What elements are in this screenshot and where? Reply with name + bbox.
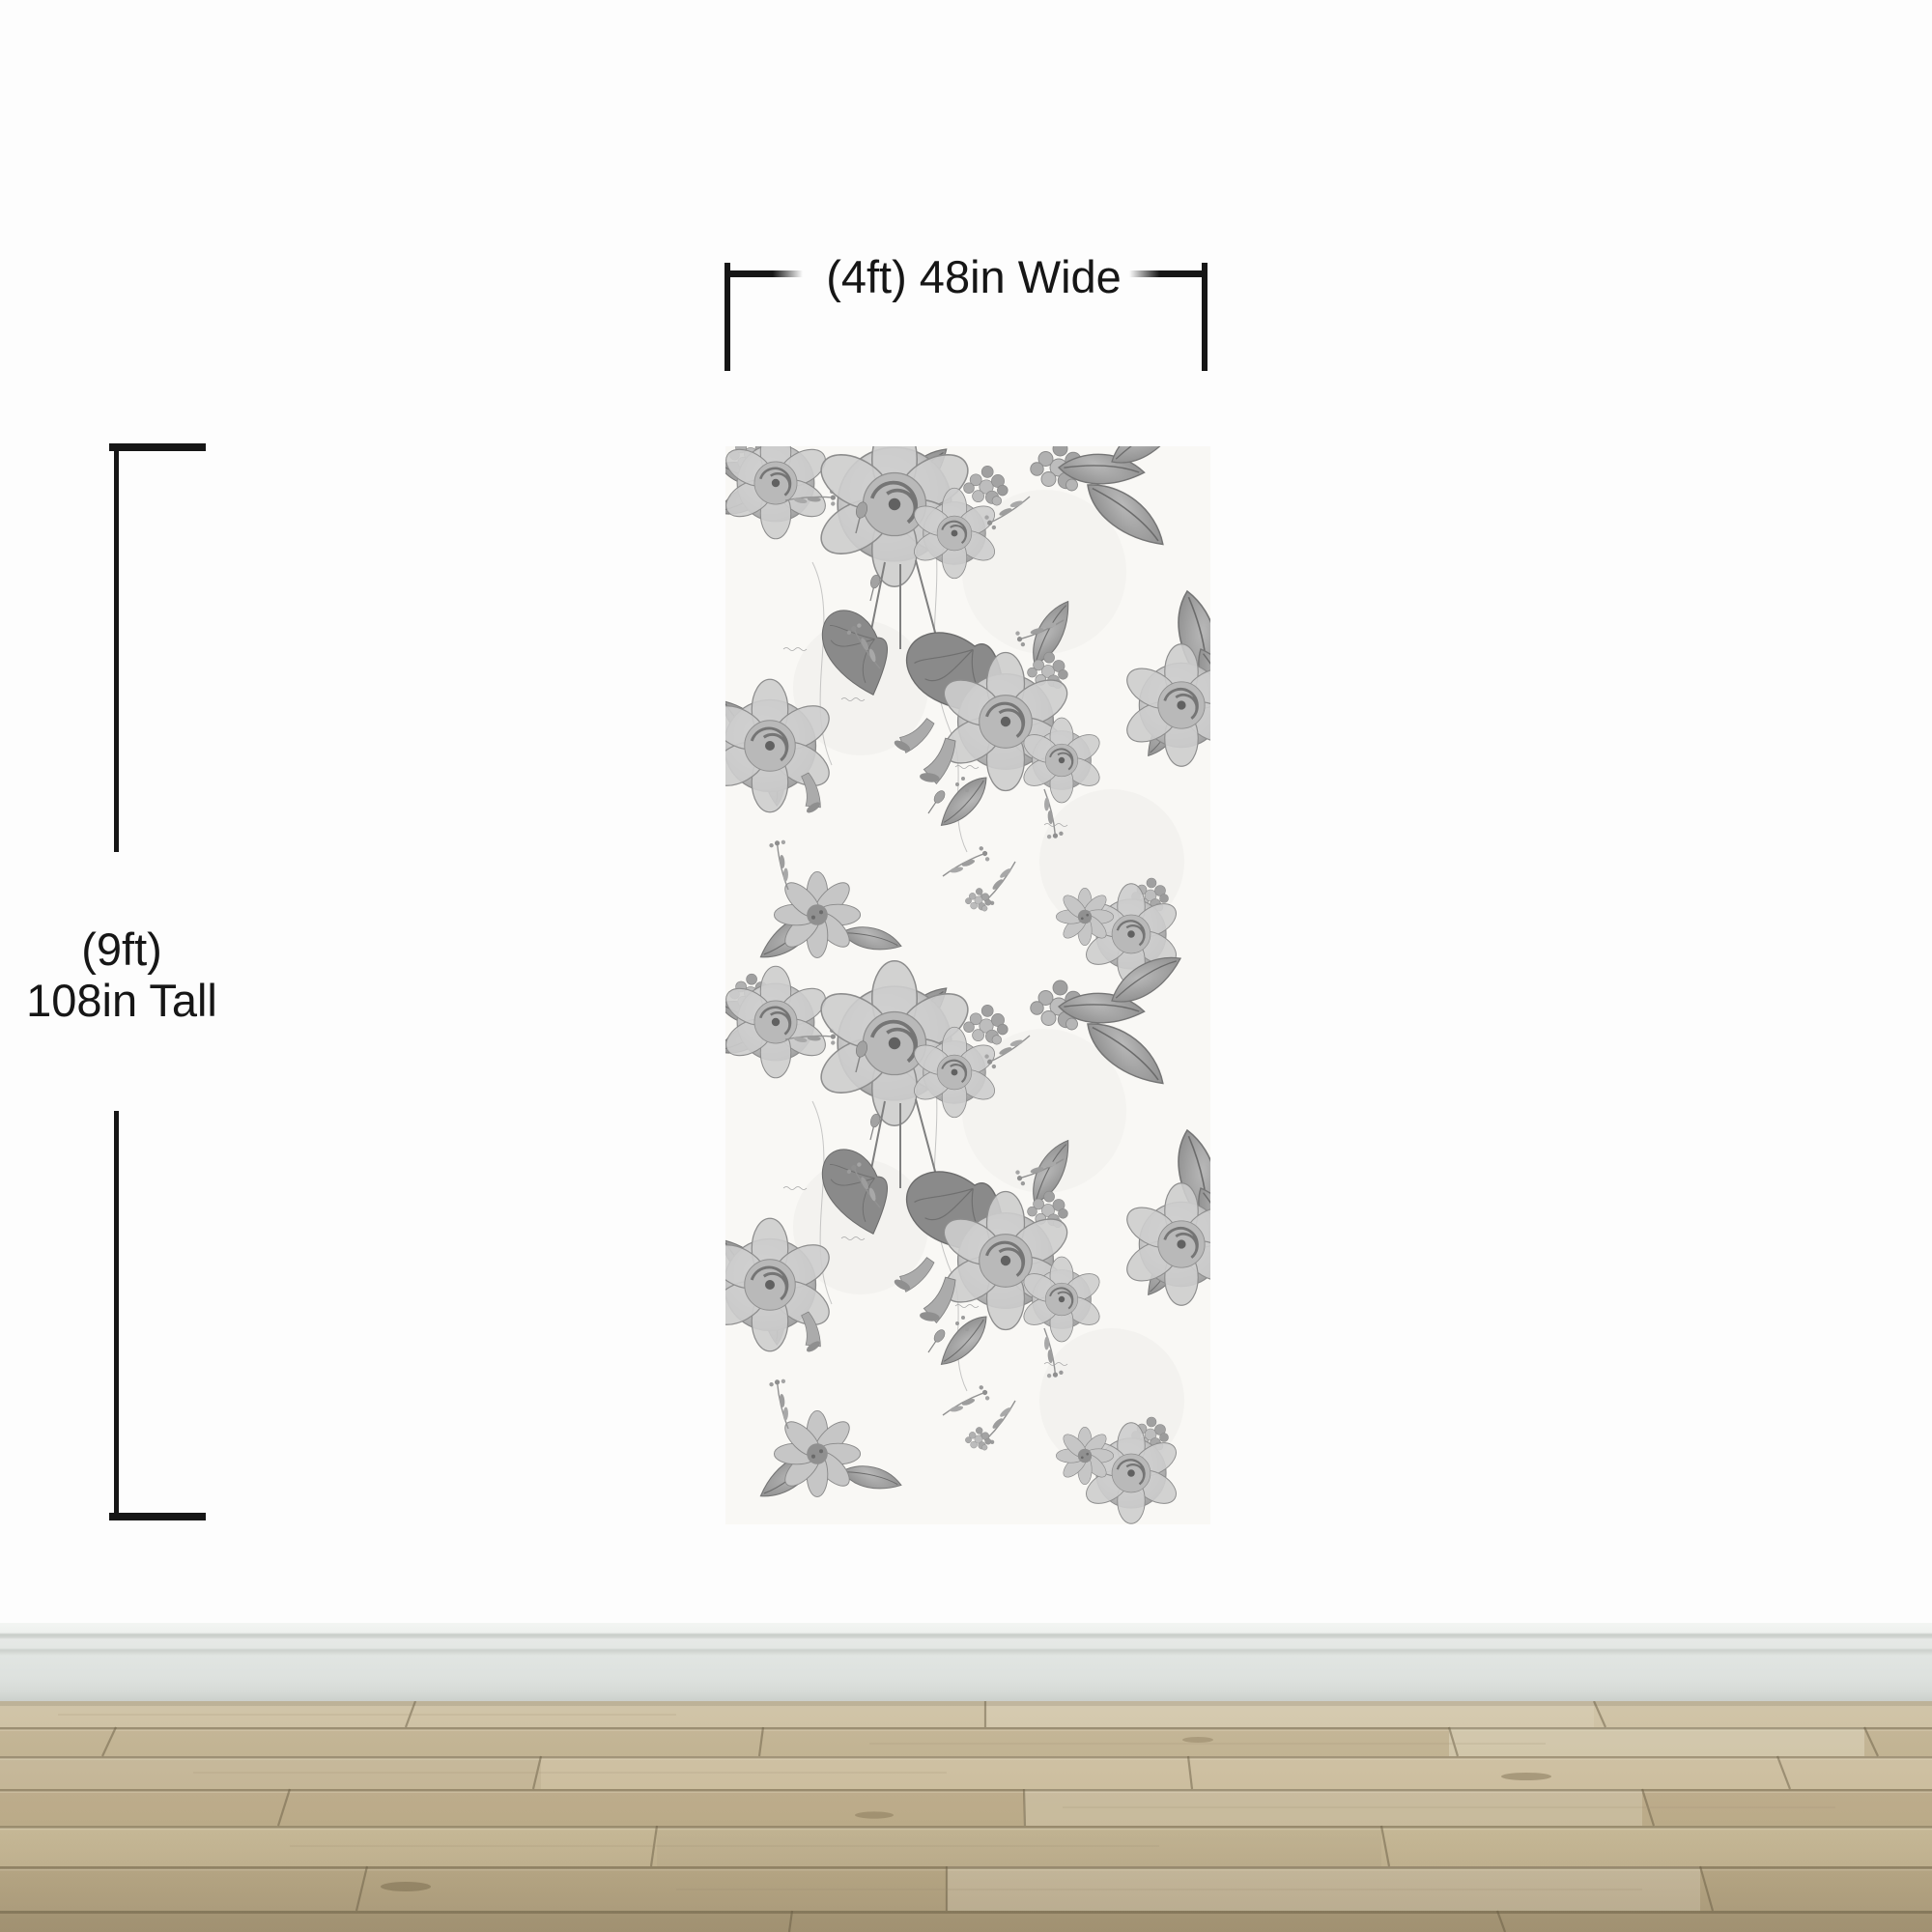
width-right-line bbox=[1129, 270, 1205, 277]
height-bottom-tick bbox=[109, 1513, 206, 1520]
width-left-line bbox=[727, 270, 803, 277]
wallpaper-panel bbox=[725, 446, 1210, 1524]
height-line-lower bbox=[114, 1111, 119, 1519]
width-left-tick bbox=[724, 263, 730, 371]
height-line-upper bbox=[114, 447, 119, 852]
product-mockup-scene: (4ft) 48in Wide (9ft) 108in Tall bbox=[0, 0, 1932, 1932]
width-right-tick bbox=[1202, 263, 1207, 371]
floral-pattern-art bbox=[725, 446, 1210, 1524]
wood-floor bbox=[0, 1701, 1932, 1932]
baseboard bbox=[0, 1623, 1932, 1701]
height-top-tick bbox=[109, 443, 206, 451]
width-label: (4ft) 48in Wide bbox=[810, 251, 1138, 302]
height-label-inches: 108in Tall bbox=[6, 975, 238, 1026]
height-label-feet: (9ft) bbox=[6, 923, 238, 975]
height-label: (9ft) 108in Tall bbox=[6, 923, 238, 1026]
